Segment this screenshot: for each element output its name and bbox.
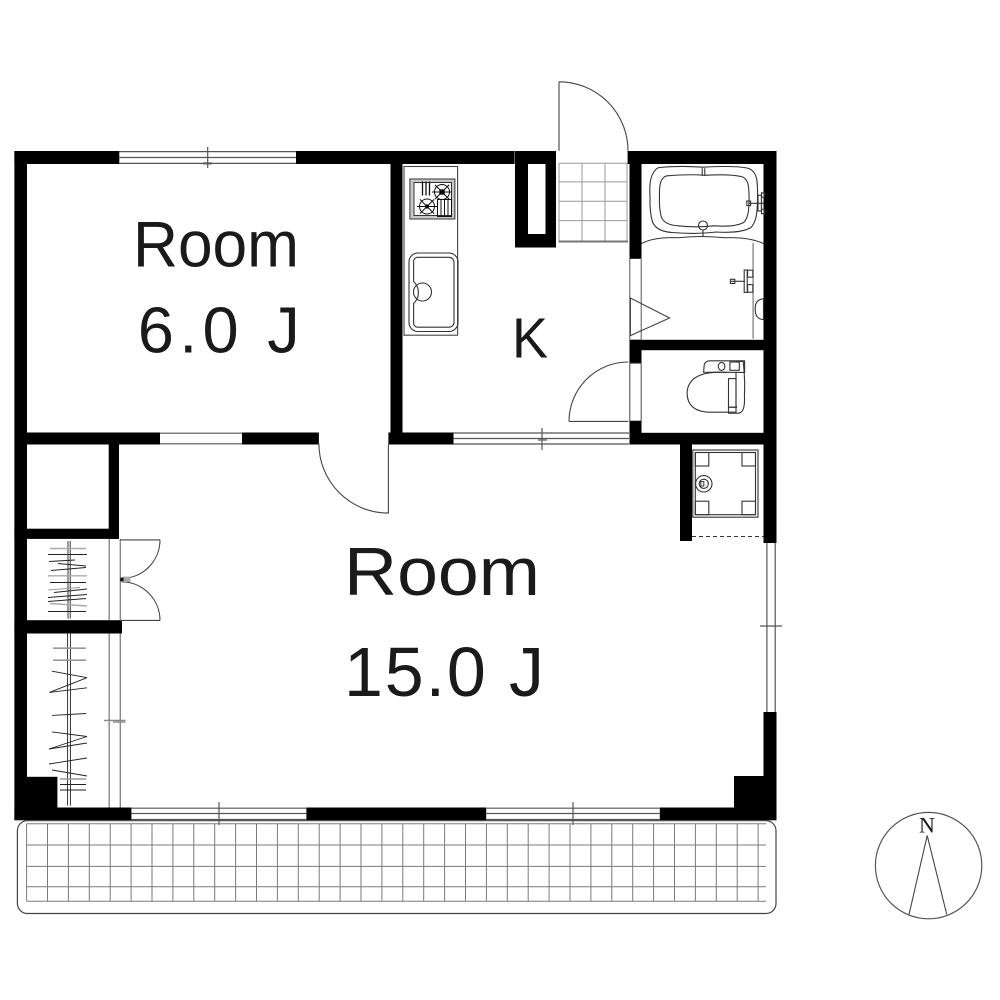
svg-text:15.0 J: 15.0 J: [344, 633, 544, 711]
svg-text:Room: Room: [133, 208, 299, 281]
svg-text:6.0 J: 6.0 J: [138, 294, 300, 367]
svg-text:N: N: [919, 813, 935, 838]
svg-text:Room: Room: [344, 534, 540, 610]
svg-text:K: K: [512, 307, 548, 371]
